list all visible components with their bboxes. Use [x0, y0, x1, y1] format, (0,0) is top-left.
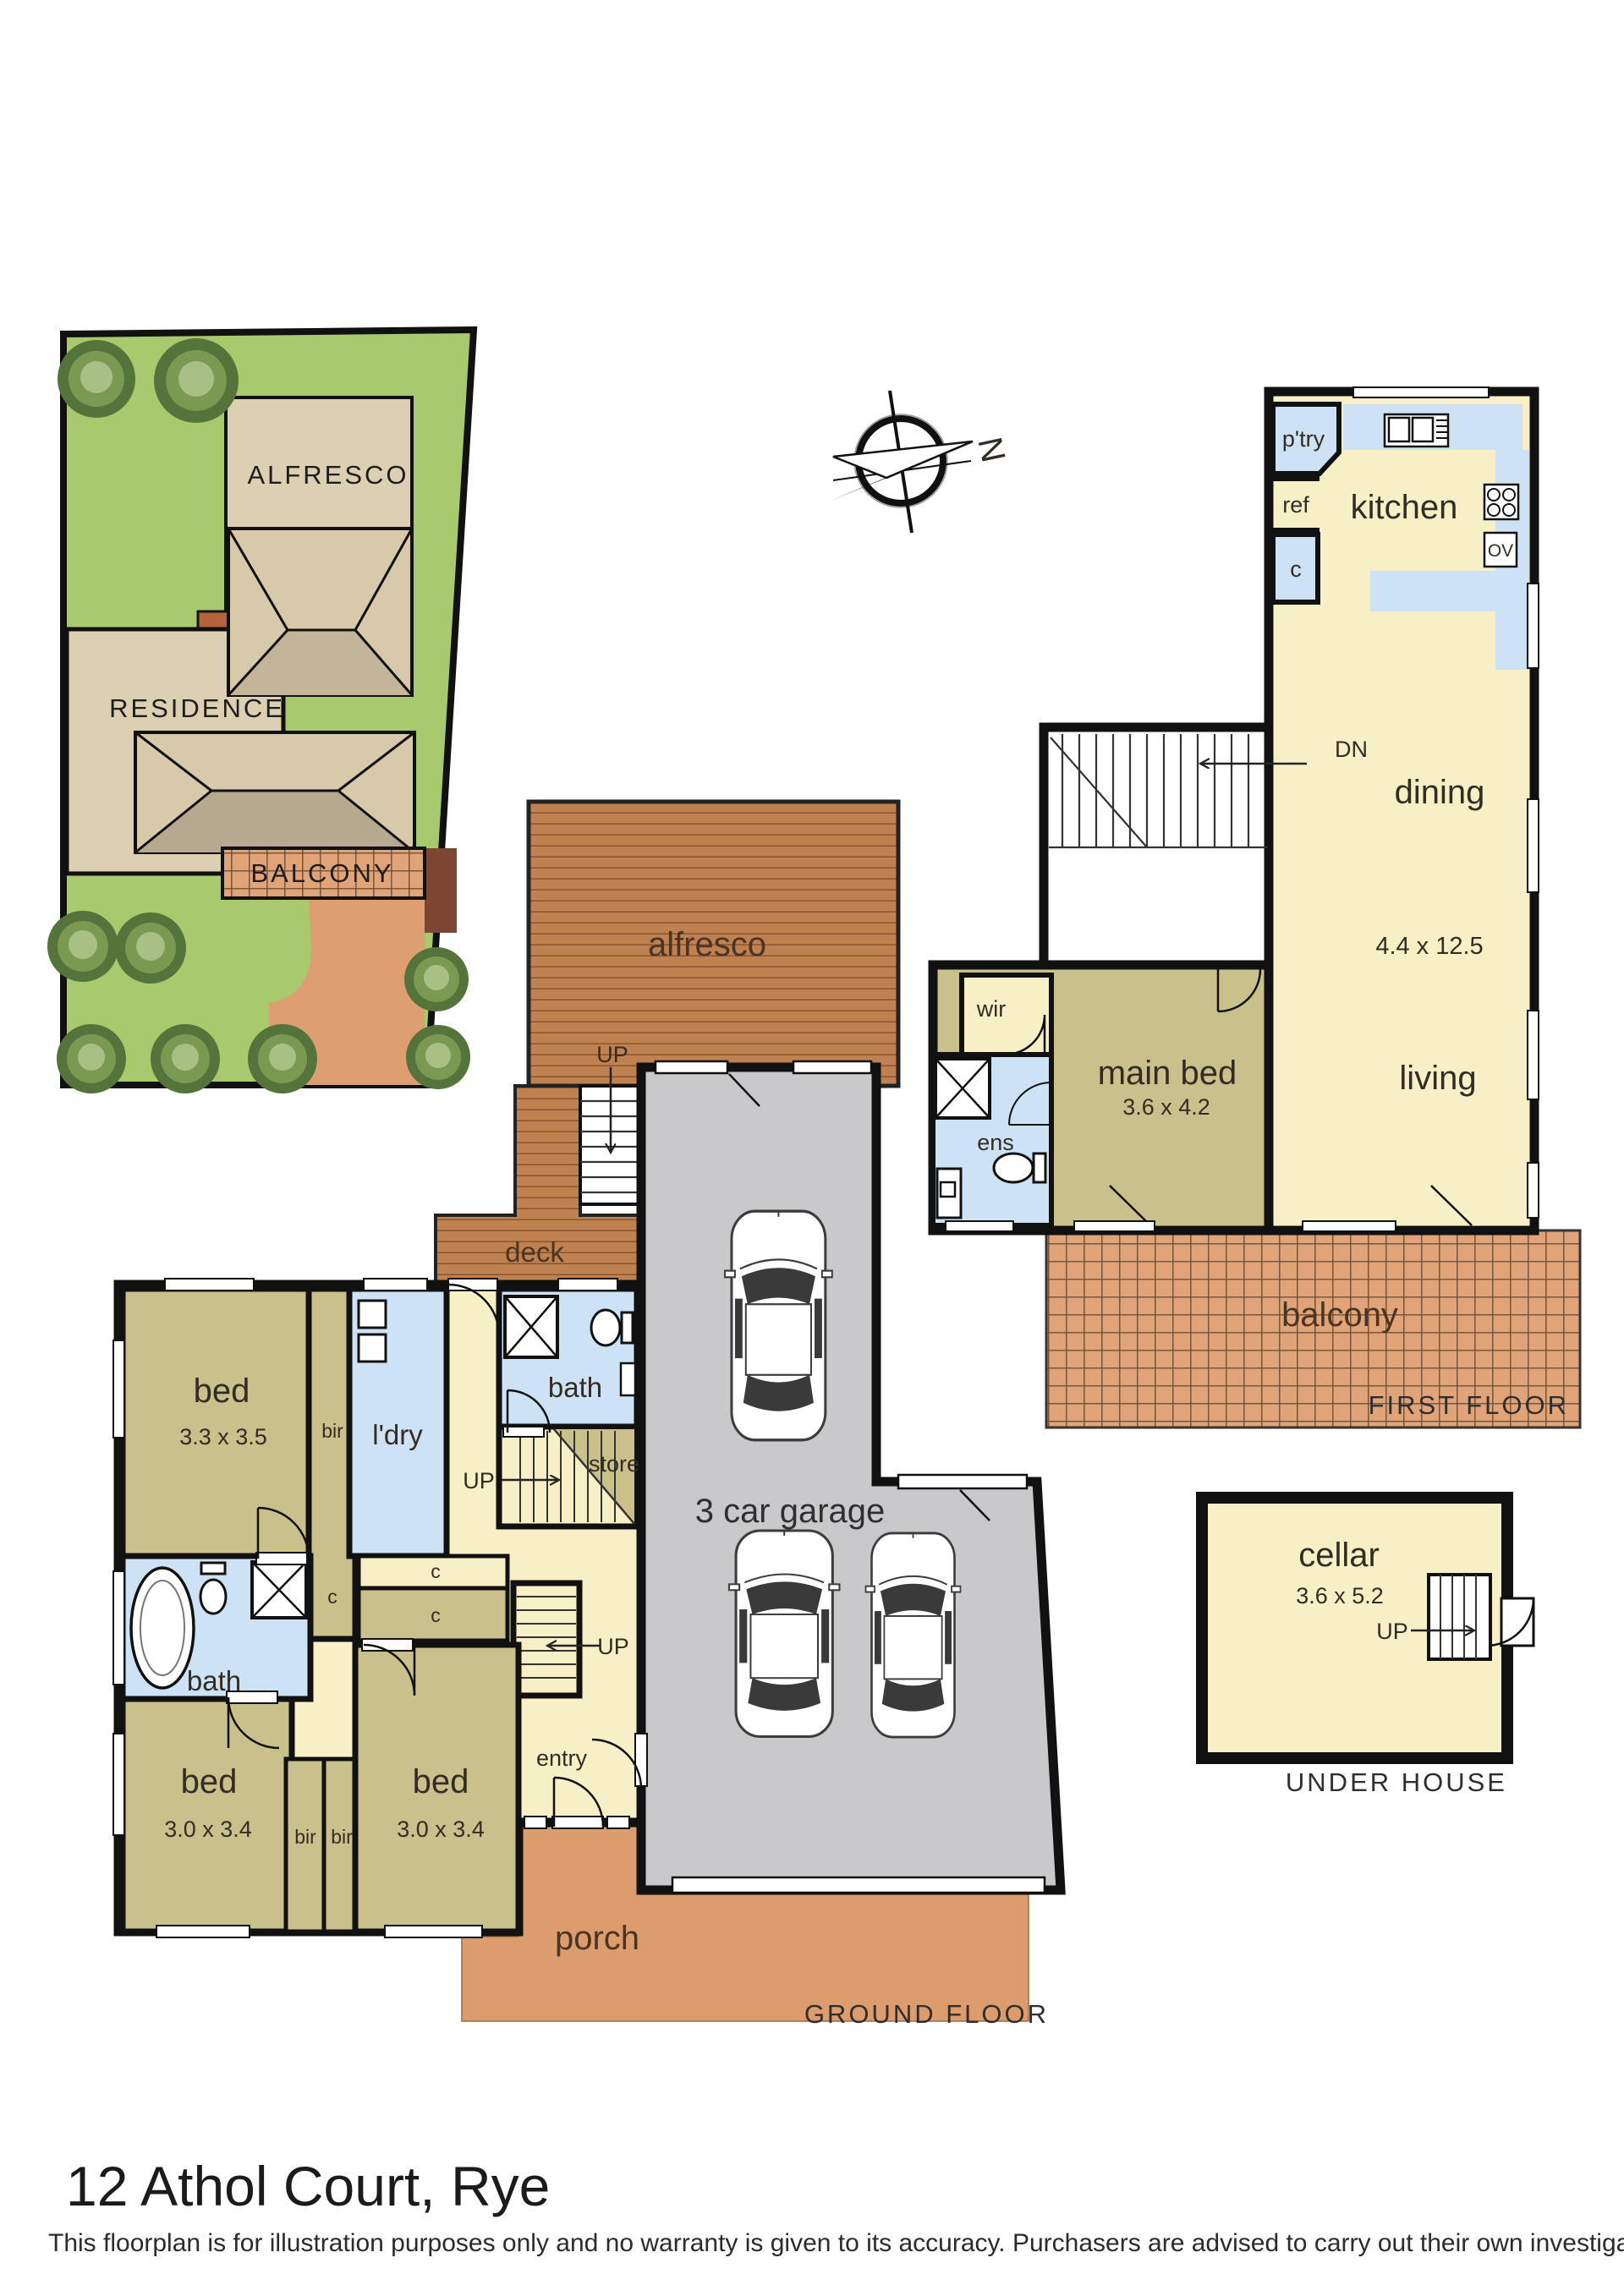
tree-icon	[151, 1024, 220, 1093]
vanity-icon	[621, 1363, 635, 1395]
first-floor-caption: FIRST FLOOR	[1369, 1390, 1569, 1420]
ff-balcony-label: balcony	[1281, 1296, 1398, 1334]
toilet-icon	[591, 1310, 633, 1345]
cupboard-label: c	[1290, 556, 1302, 582]
car-icon	[725, 1211, 832, 1440]
tree-icon	[404, 947, 469, 1011]
first-floor: p'try ref c kitchen OV DN dining 4.4 x 1…	[933, 387, 1580, 1427]
living-dims: 4.4 x 12.5	[1375, 933, 1483, 960]
bed2-label: bed	[181, 1763, 238, 1800]
bath2-label: bath	[187, 1665, 241, 1696]
c1-label: c	[431, 1560, 441, 1582]
site-balcony-label: BALCONY	[250, 858, 393, 888]
up3-label: UP	[597, 1634, 629, 1659]
bath1-label: bath	[548, 1372, 602, 1403]
cellar-label: cellar	[1298, 1537, 1380, 1574]
ens-label: ens	[977, 1130, 1014, 1155]
bathtub-icon	[131, 1568, 194, 1688]
bir1-label: bir	[321, 1420, 343, 1442]
site-plan: ALFRESCO RESIDENCE BALCONY	[47, 330, 474, 1093]
tree-icon	[58, 340, 135, 418]
page-title: 12 Athol Court, Rye	[66, 2155, 550, 2217]
bir2-label: bir	[294, 1826, 316, 1848]
store-label: store	[589, 1451, 639, 1477]
laundry-label: l'dry	[372, 1419, 423, 1450]
bed1-room	[123, 1289, 310, 1556]
porch-label: porch	[555, 1920, 639, 1957]
garage-label: 3 car garage	[695, 1493, 886, 1530]
roof-lower	[135, 732, 414, 852]
shower-icon	[935, 1059, 990, 1118]
compass: N	[831, 391, 1012, 533]
tree-icon	[115, 912, 186, 984]
tree-icon	[154, 338, 239, 423]
north-arrow-icon	[831, 391, 973, 533]
cellar-dims: 3.6 x 5.2	[1296, 1583, 1384, 1608]
dn-label: DN	[1335, 737, 1368, 762]
main-bed-dims: 3.6 x 4.2	[1122, 1094, 1210, 1120]
up-alfresco-label: UP	[596, 1042, 628, 1067]
pantry-label: p'try	[1282, 426, 1325, 452]
compass-north-label: N	[970, 434, 1012, 465]
floorplan-page: ALFRESCO RESIDENCE BALCONY N	[0, 0, 1624, 2296]
under-house-caption: UNDER HOUSE	[1286, 1767, 1507, 1797]
wir-room	[962, 975, 1051, 1055]
cellar: cellar 3.6 x 5.2 UP UNDER HOUSE	[1202, 1498, 1533, 1797]
stairs3-block	[513, 1583, 579, 1696]
gf-alfresco-label: alfresco	[648, 926, 766, 963]
bed2-dims: 3.0 x 3.4	[164, 1817, 252, 1842]
cooktop-icon	[1484, 485, 1518, 519]
toilet-icon	[200, 1563, 226, 1614]
disclaimer-text: This floorplan is for illustration purpo…	[48, 2229, 1624, 2257]
ref-label: ref	[1282, 492, 1309, 518]
bed1-dims: 3.3 x 3.5	[179, 1424, 267, 1449]
car-icon	[866, 1533, 961, 1737]
c2-label: c	[431, 1604, 441, 1626]
site-residence-label: RESIDENCE	[109, 693, 285, 723]
oven-label: OV	[1488, 541, 1513, 561]
wir-label: wir	[976, 996, 1007, 1022]
entry-label: entry	[536, 1745, 588, 1771]
shower-icon	[505, 1296, 557, 1357]
sink-icon	[1385, 414, 1448, 447]
deck-label: deck	[505, 1236, 564, 1268]
floorplan-canvas: ALFRESCO RESIDENCE BALCONY N	[0, 0, 1624, 2296]
bed2-room	[123, 1699, 292, 1932]
tree-icon	[47, 911, 118, 982]
site-path	[425, 848, 457, 933]
tree-icon	[406, 1025, 470, 1089]
gf-stairs-alfresco	[580, 1067, 641, 1204]
car-icon	[729, 1531, 840, 1737]
cellar-door-notch	[1501, 1598, 1533, 1646]
roof-upper	[228, 529, 412, 695]
site-alfresco-label: ALFRESCO	[247, 460, 409, 490]
toilet-icon	[994, 1153, 1045, 1182]
main-bed-label: main bed	[1098, 1055, 1237, 1092]
tree-icon	[57, 1024, 126, 1093]
bir3-label: bir	[331, 1826, 353, 1848]
dining-label: dining	[1395, 774, 1485, 811]
up2-label: UP	[463, 1468, 495, 1493]
tree-icon	[248, 1024, 317, 1093]
vanity-icon	[937, 1169, 961, 1218]
shower-icon	[252, 1562, 306, 1618]
living-label: living	[1399, 1060, 1476, 1097]
ground-floor-caption: GROUND FLOOR	[804, 1999, 1049, 2029]
c3-label: c	[327, 1586, 337, 1608]
bed3-label: bed	[413, 1763, 469, 1800]
cellar-up-label: UP	[1376, 1619, 1408, 1644]
kitchen-label: kitchen	[1351, 489, 1458, 526]
bed1-label: bed	[194, 1373, 250, 1410]
bed3-dims: 3.0 x 3.4	[397, 1817, 485, 1842]
